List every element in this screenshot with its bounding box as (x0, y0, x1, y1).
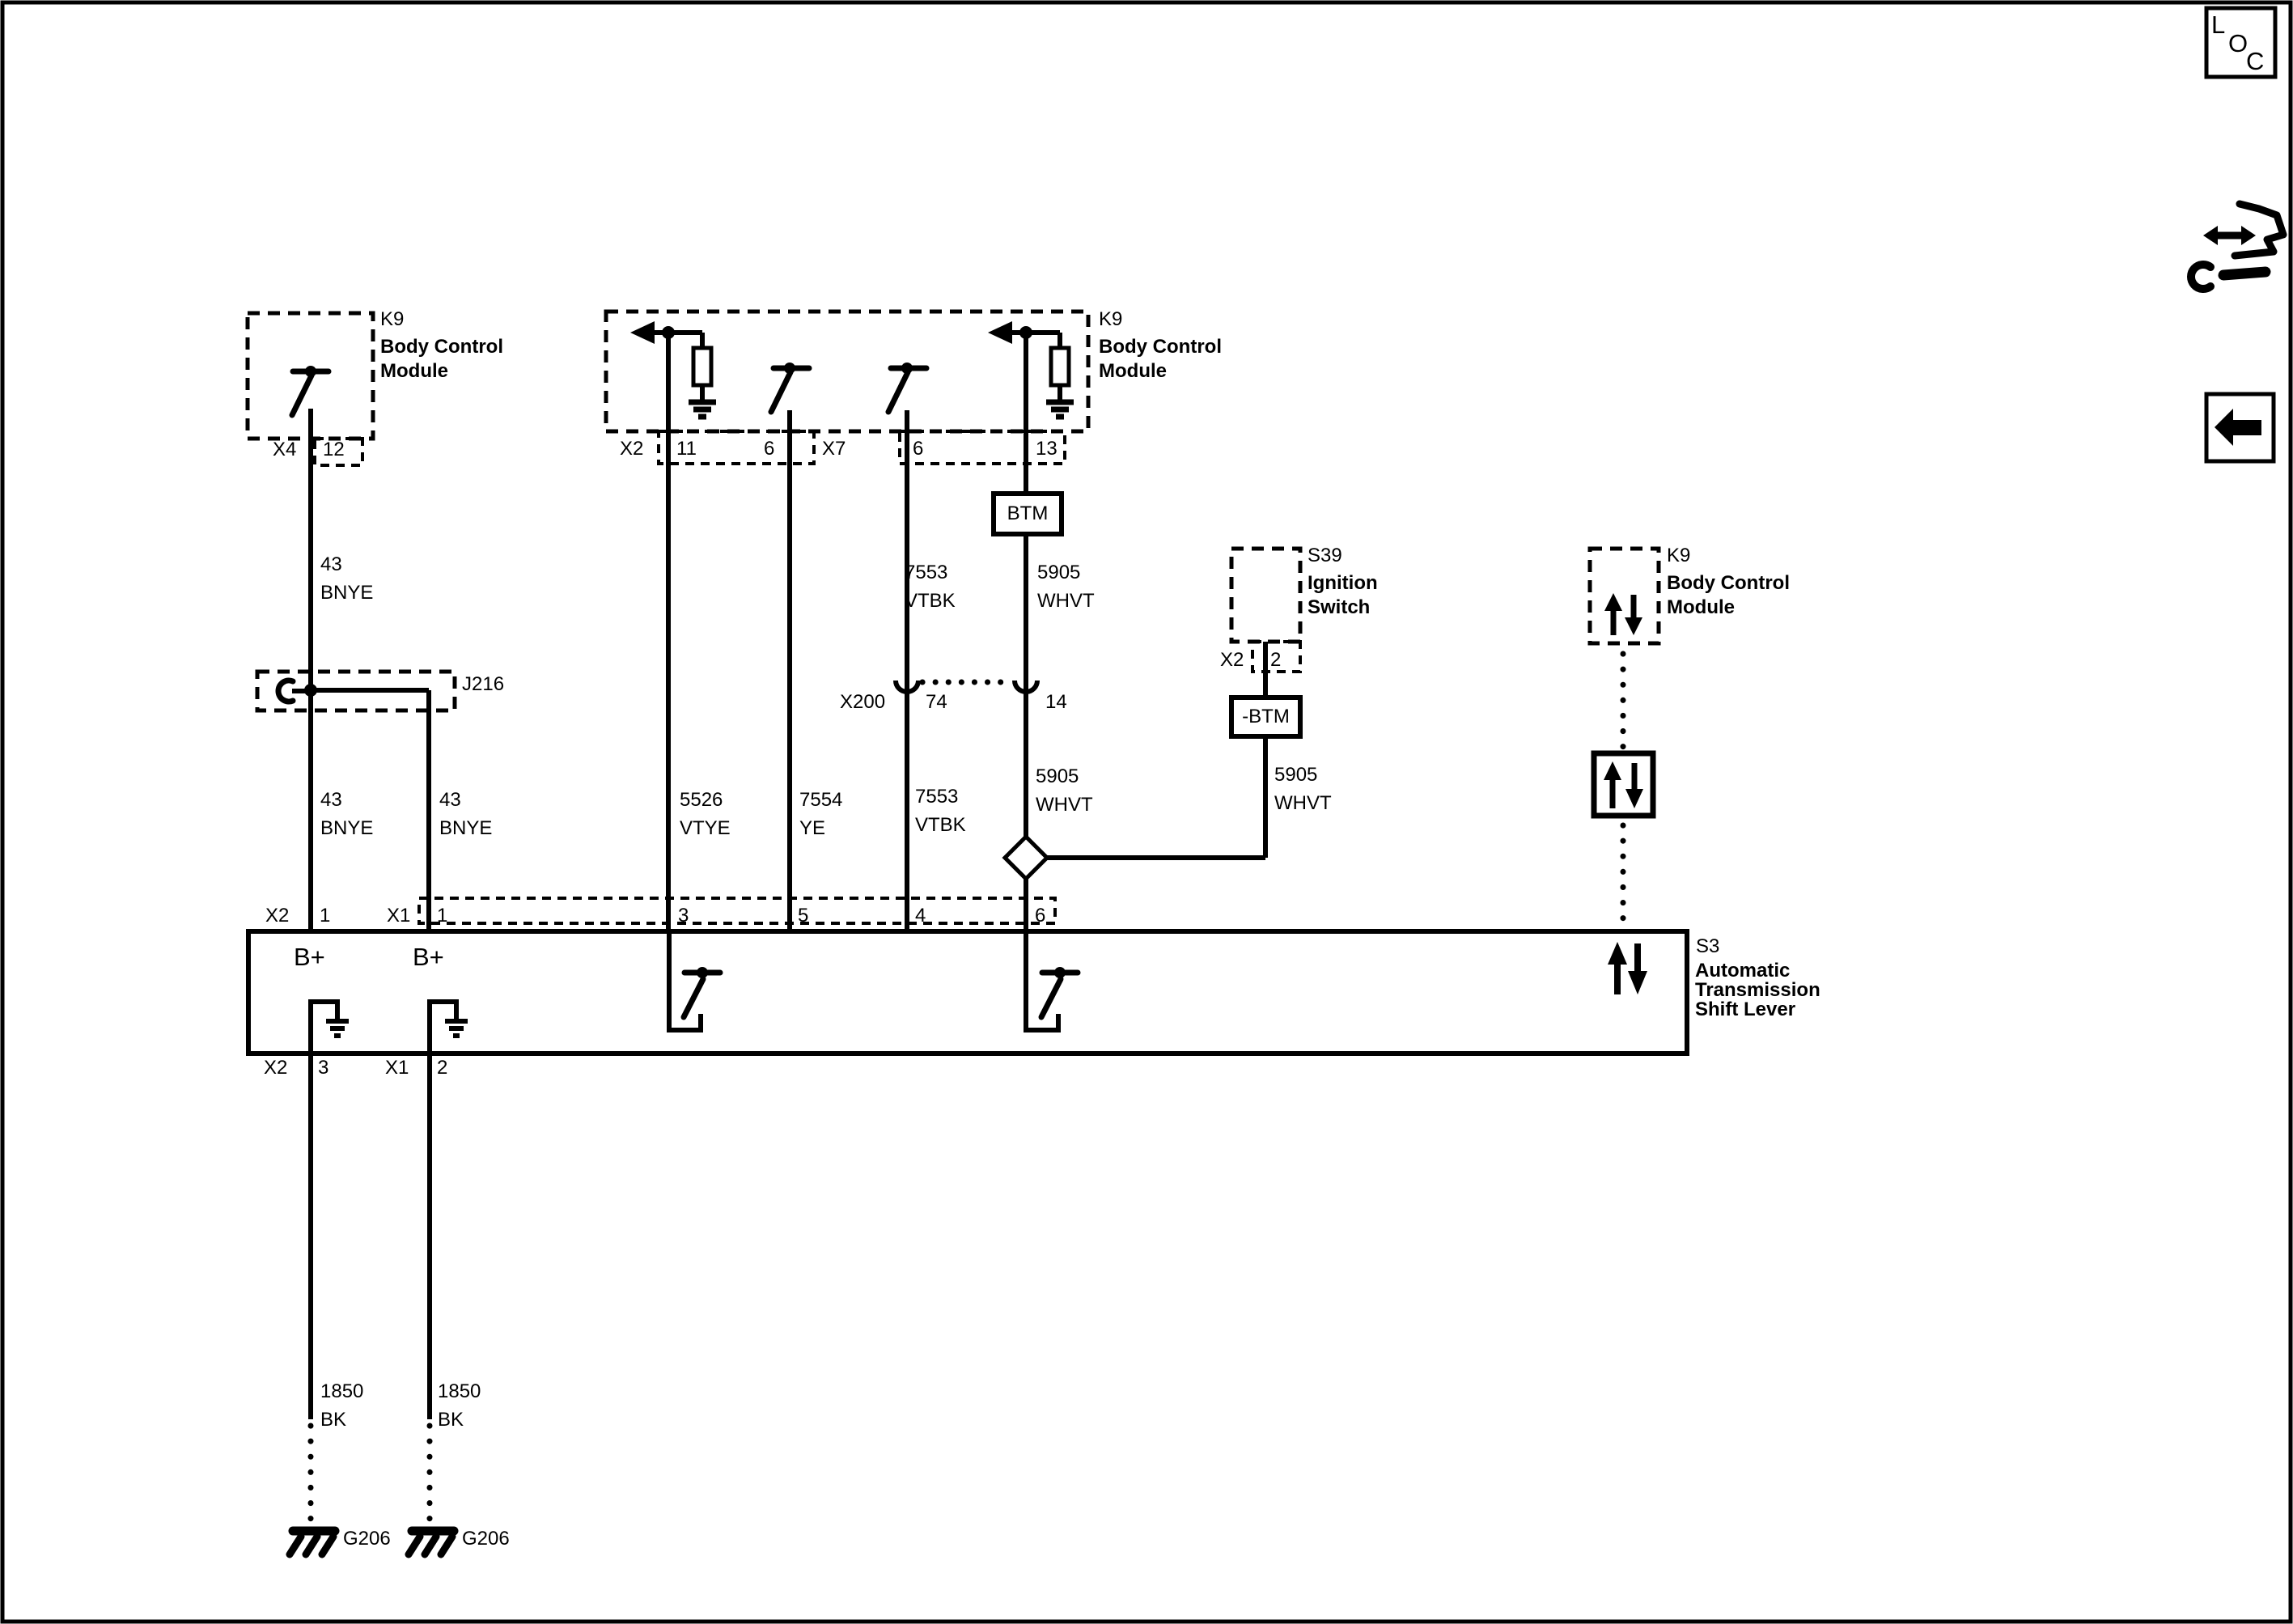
neg-btm-label: -BTM (1231, 698, 1300, 736)
component-id: K9 (380, 309, 404, 330)
switch-bcm-mid1-blade (771, 372, 790, 412)
connector-label: X2 (1220, 650, 1244, 671)
ignition-switch-box (1231, 549, 1300, 642)
dot (305, 366, 316, 377)
component-name: Body Control Module (1099, 335, 1222, 384)
pin-label: 3 (678, 905, 689, 926)
pin-label: 1 (437, 905, 447, 926)
chassis-ground-icon (409, 1531, 454, 1554)
updown-arrows-icon (1604, 593, 1642, 635)
pin-label: 1 (320, 905, 330, 926)
dot (1054, 967, 1066, 978)
pin-bracket-s3-x1 (419, 898, 1055, 923)
wire-label: 1850 BK (438, 1377, 481, 1434)
component-name: Ignition Switch (1308, 571, 1378, 620)
connector-label: X4 (273, 439, 296, 460)
loc-letter-o: O (2228, 29, 2248, 58)
pin-label: 6 (1035, 905, 1045, 926)
pin-label: 6 (913, 439, 923, 460)
splice-dot (304, 684, 317, 697)
component-id: K9 (1667, 545, 1690, 566)
bcm-right-box (1590, 549, 1659, 643)
wire-label: 43 BNYE (320, 550, 373, 607)
wire-label: 7553 VTBK (905, 558, 956, 615)
wire-label: 5526 VTYE (680, 786, 731, 842)
dot (901, 363, 913, 374)
splice-hook-icon (278, 681, 293, 702)
back-button[interactable] (2206, 394, 2274, 461)
ground-id: G206 (462, 1529, 510, 1550)
dot (662, 326, 675, 339)
pin-label: 4 (915, 905, 926, 926)
wire-label: 7553 VTBK (915, 782, 966, 839)
wire-label: 5905 WHVT (1036, 762, 1093, 819)
connector-id: X200 (840, 692, 885, 713)
wire-label: 43 BNYE (320, 786, 373, 842)
wire-label: 43 BNYE (439, 786, 492, 842)
component-name: Body Control Module (380, 335, 503, 384)
chassis-ground-icon (290, 1531, 335, 1554)
wire-label: 1850 BK (320, 1377, 363, 1434)
pin-label: 2 (437, 1058, 447, 1079)
shift-lever-box (248, 931, 1687, 1054)
switch-s3-2-blade (1041, 979, 1061, 1017)
pin-label: 12 (323, 439, 345, 460)
wiring-diagram-page: L O C K9 Body Control Module X4 12 K9 Bo… (0, 0, 2293, 1624)
pin-label: 2 (1270, 650, 1281, 671)
ground-id: G206 (343, 1529, 391, 1550)
splice-id: J216 (462, 674, 504, 695)
dot (784, 363, 795, 374)
connector-label: X7 (822, 439, 846, 460)
updown-arrows-icon (1608, 942, 1647, 994)
bplus-label: B+ (294, 947, 325, 968)
connector-label: X2 (265, 905, 289, 926)
component-id: K9 (1099, 309, 1122, 330)
dot (1019, 326, 1032, 339)
switch-s3-1-blade (684, 979, 703, 1017)
resistor-right-icon (1051, 348, 1069, 385)
bcm-mid-box (606, 312, 1088, 431)
loc-letter-c: C (2246, 47, 2264, 76)
connector-label: X2 (620, 439, 643, 460)
pin-label: 74 (926, 692, 947, 713)
offpage-arrow-right-icon (988, 321, 1012, 344)
pin-label: 5 (798, 905, 808, 926)
loc-letter-l: L (2211, 11, 2225, 40)
harness-repair-icon[interactable] (2191, 204, 2283, 289)
offpage-arrow-left-icon (630, 321, 655, 344)
connector-label: X2 (264, 1058, 287, 1079)
pin-label: 6 (764, 439, 774, 460)
btm-label: BTM (994, 494, 1062, 534)
resistor-left-icon (693, 348, 711, 385)
component-name: Body Control Module (1667, 571, 1790, 620)
wire-label: 5905 WHVT (1274, 761, 1332, 817)
wire-label: 7554 YE (799, 786, 842, 842)
connector-label: X1 (387, 905, 410, 926)
wire-label: 5905 WHVT (1037, 558, 1095, 615)
dot (697, 967, 708, 978)
pin-label: 11 (676, 439, 697, 460)
bplus-label: B+ (413, 947, 444, 968)
component-name: Automatic Transmission Shift Lever (1695, 961, 1820, 1020)
updown-arrows-box (1594, 753, 1653, 816)
component-id: S3 (1696, 936, 1719, 957)
switch-bcm-mid2-blade (888, 372, 908, 412)
pin-label: 3 (318, 1058, 328, 1079)
diamond-junction-icon (1005, 837, 1047, 879)
pin-label: 13 (1036, 439, 1057, 460)
connector-label: X1 (385, 1058, 409, 1079)
component-id: S39 (1308, 545, 1342, 566)
pin-label: 14 (1045, 692, 1067, 713)
